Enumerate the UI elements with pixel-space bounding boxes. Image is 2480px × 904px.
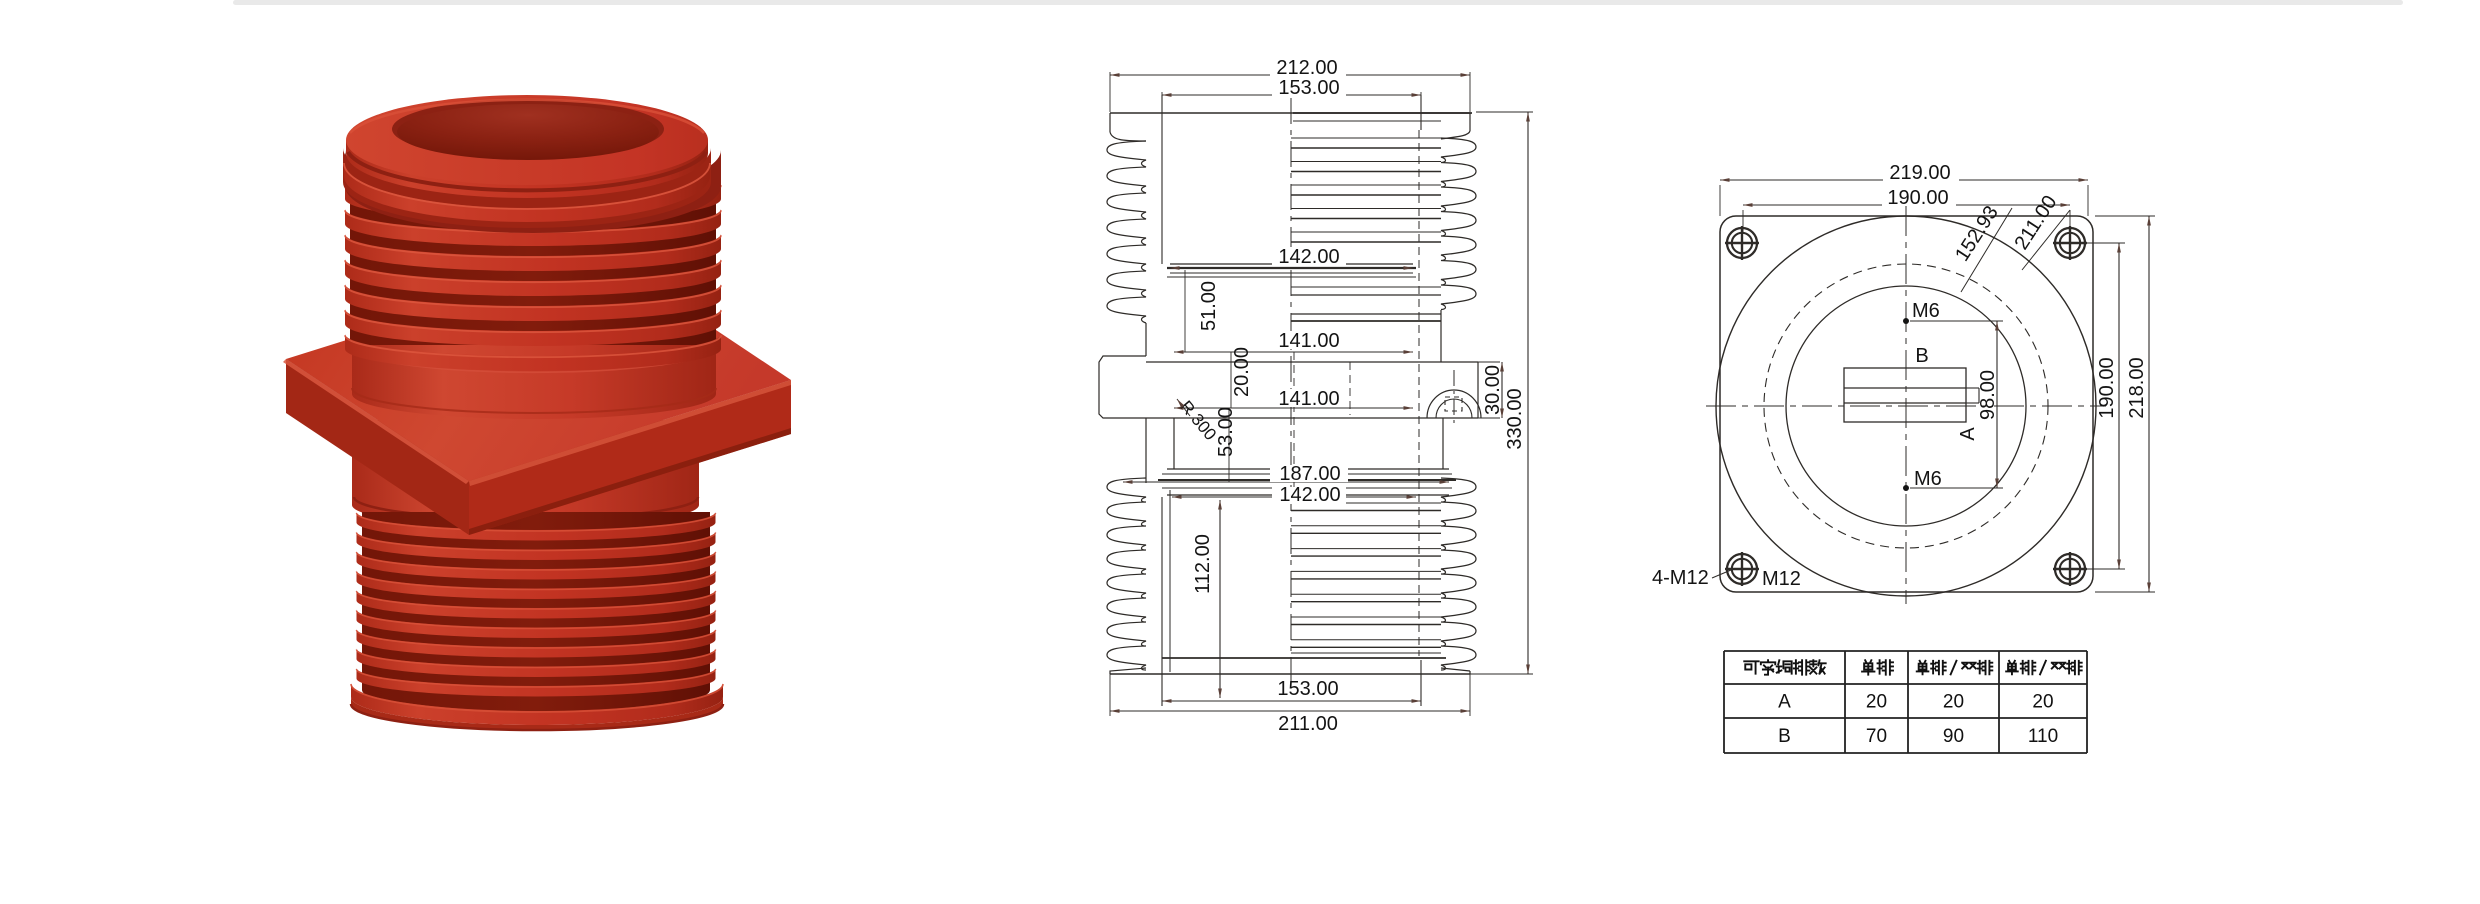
- svg-text:190.00: 190.00: [2096, 357, 2118, 418]
- svg-text:330.00: 330.00: [1504, 388, 1526, 449]
- svg-text:187.00: 187.00: [1279, 463, 1340, 485]
- svg-text:153.00: 153.00: [1277, 678, 1338, 700]
- svg-text:141.00: 141.00: [1278, 330, 1339, 352]
- svg-text:20.00: 20.00: [1231, 347, 1253, 397]
- svg-text:A: A: [1778, 692, 1791, 713]
- svg-text:142.00: 142.00: [1279, 484, 1340, 506]
- svg-text:190.00: 190.00: [1887, 187, 1948, 209]
- svg-text:112.00: 112.00: [1192, 534, 1214, 594]
- svg-text:142.00: 142.00: [1278, 246, 1339, 268]
- svg-text:20: 20: [1943, 692, 1964, 713]
- svg-text:153.00: 153.00: [1278, 77, 1339, 99]
- svg-text:211.00: 211.00: [1278, 713, 1338, 735]
- svg-text:211.00: 211.00: [2010, 192, 2061, 254]
- svg-text:212.00: 212.00: [1276, 57, 1337, 79]
- svg-text:M12: M12: [1762, 568, 1801, 590]
- svg-text:A: A: [1957, 427, 1979, 441]
- svg-text:B: B: [1778, 726, 1791, 747]
- svg-text:152.93: 152.93: [1951, 202, 2003, 265]
- svg-text:219.00: 219.00: [1889, 162, 1950, 184]
- svg-text:141.00: 141.00: [1278, 388, 1339, 410]
- svg-text:70: 70: [1866, 726, 1887, 747]
- svg-text:M6: M6: [1914, 468, 1942, 490]
- svg-text:M6: M6: [1912, 300, 1940, 322]
- svg-text:20: 20: [1866, 692, 1887, 713]
- svg-text:20: 20: [2032, 692, 2053, 713]
- svg-text:51.00: 51.00: [1198, 281, 1220, 331]
- svg-text:90: 90: [1943, 726, 1964, 747]
- svg-text:218.00: 218.00: [2126, 357, 2148, 418]
- svg-text:30.00: 30.00: [1482, 365, 1504, 415]
- svg-text:R 300: R 300: [1176, 397, 1220, 444]
- svg-text:4-M12: 4-M12: [1652, 567, 1709, 589]
- svg-text:98.00: 98.00: [1977, 370, 1999, 420]
- svg-text:110: 110: [2028, 726, 2058, 747]
- svg-text:B: B: [1915, 345, 1928, 367]
